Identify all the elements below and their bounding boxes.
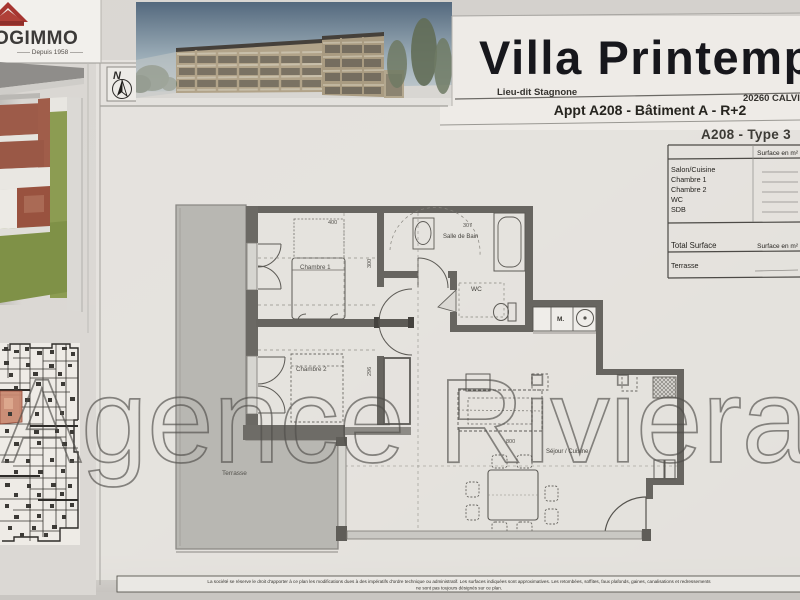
svg-text:Villa Printemps: Villa Printemps xyxy=(479,31,800,84)
svg-text:Appt A208 - Bâtiment A - R+2: Appt A208 - Bâtiment A - R+2 xyxy=(554,102,747,118)
svg-text:Salle de Bain: Salle de Bain xyxy=(443,234,478,240)
svg-text:OGIMMO: OGIMMO xyxy=(0,28,78,49)
svg-text:Surface en m²: Surface en m² xyxy=(757,150,799,157)
svg-text:Chambre 1: Chambre 1 xyxy=(300,264,331,271)
svg-text:Chambre 1: Chambre 1 xyxy=(671,175,707,184)
svg-text:WC: WC xyxy=(471,286,482,293)
svg-text:400: 400 xyxy=(328,220,337,226)
svg-text:—— Depuis 1958 ——: —— Depuis 1958 —— xyxy=(17,49,84,56)
svg-text:Salon/Cuisine: Salon/Cuisine xyxy=(671,165,715,174)
svg-text:Agence Riviera: Agence Riviera xyxy=(2,354,800,488)
svg-text:WC: WC xyxy=(671,195,683,204)
svg-text:M.: M. xyxy=(557,316,564,323)
svg-text:Total Surface: Total Surface xyxy=(671,241,717,250)
svg-text:Lieu-dit Stagnone: Lieu-dit Stagnone xyxy=(497,87,577,98)
svg-text:Chambre 2: Chambre 2 xyxy=(671,185,707,194)
svg-text:20260 CALVI: 20260 CALVI xyxy=(743,93,800,104)
svg-text:SDB: SDB xyxy=(671,205,686,214)
svg-text:ne sont pas toujours désignés: ne sont pas toujours désignés sur ce pla… xyxy=(416,586,502,591)
svg-text:A208 - Type 3: A208 - Type 3 xyxy=(701,127,791,142)
svg-text:Terrasse: Terrasse xyxy=(671,261,699,270)
svg-text:307: 307 xyxy=(463,223,472,229)
svg-text:La société se réserve le droit: La société se réserve le droit d'apporte… xyxy=(207,579,711,584)
svg-text:300: 300 xyxy=(367,259,373,268)
svg-text:Surface en m²: Surface en m² xyxy=(757,243,799,250)
